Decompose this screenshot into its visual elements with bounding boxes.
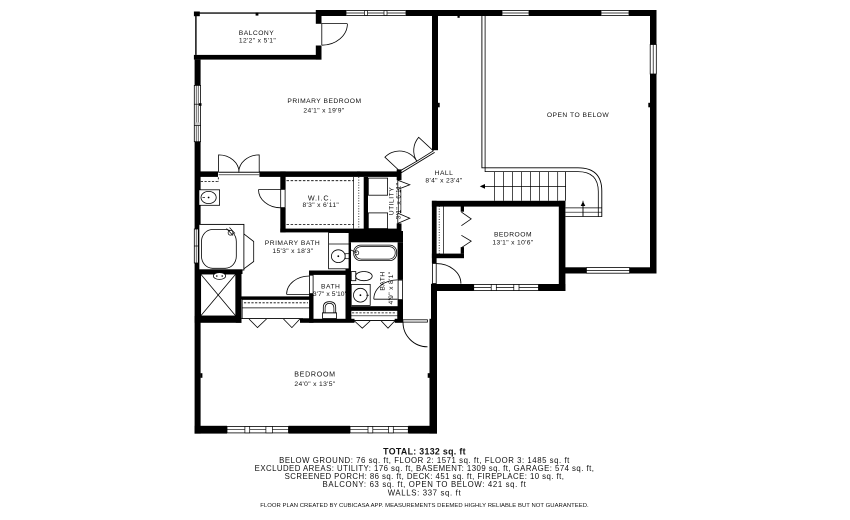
svg-text:OPEN TO BELOW: OPEN TO BELOW [547,112,610,119]
svg-text:BATH: BATH [321,284,340,291]
svg-text:PRIMARY BATH: PRIMARY BATH [265,240,320,247]
svg-text:BEDROOM: BEDROOM [294,371,336,379]
svg-text:HALL: HALL [435,170,454,177]
svg-text:3'1" x 6'11": 3'1" x 6'11" [396,182,403,219]
svg-text:UTILITY: UTILITY [388,187,395,215]
svg-text:FLOOR PLAN CREATED BY CUBICASA: FLOOR PLAN CREATED BY CUBICASA APP. MEAS… [260,503,589,509]
svg-text:8'4" x 23'4": 8'4" x 23'4" [425,178,462,185]
svg-text:4'9" x 8'1": 4'9" x 8'1" [388,271,395,304]
svg-text:13'1" x 10'6": 13'1" x 10'6" [492,240,534,247]
svg-text:12'2" x 5'1": 12'2" x 5'1" [239,37,276,44]
svg-text:15'3" x 18'3": 15'3" x 18'3" [272,248,314,255]
svg-text:PRIMARY BEDROOM: PRIMARY BEDROOM [287,98,361,105]
svg-text:24'0" x 13'5": 24'0" x 13'5" [294,381,336,388]
svg-text:3'7" x 5'10": 3'7" x 5'10" [313,291,348,298]
svg-text:24'1" x 19'9": 24'1" x 19'9" [303,108,345,115]
svg-text:BATH: BATH [379,271,386,290]
svg-text:BEDROOM: BEDROOM [494,232,532,239]
svg-text:WALLS: 337 sq. ft: WALLS: 337 sq. ft [388,488,462,497]
svg-text:BALCONY: BALCONY [239,30,275,37]
svg-text:8'3" x 6'11": 8'3" x 6'11" [302,202,339,209]
